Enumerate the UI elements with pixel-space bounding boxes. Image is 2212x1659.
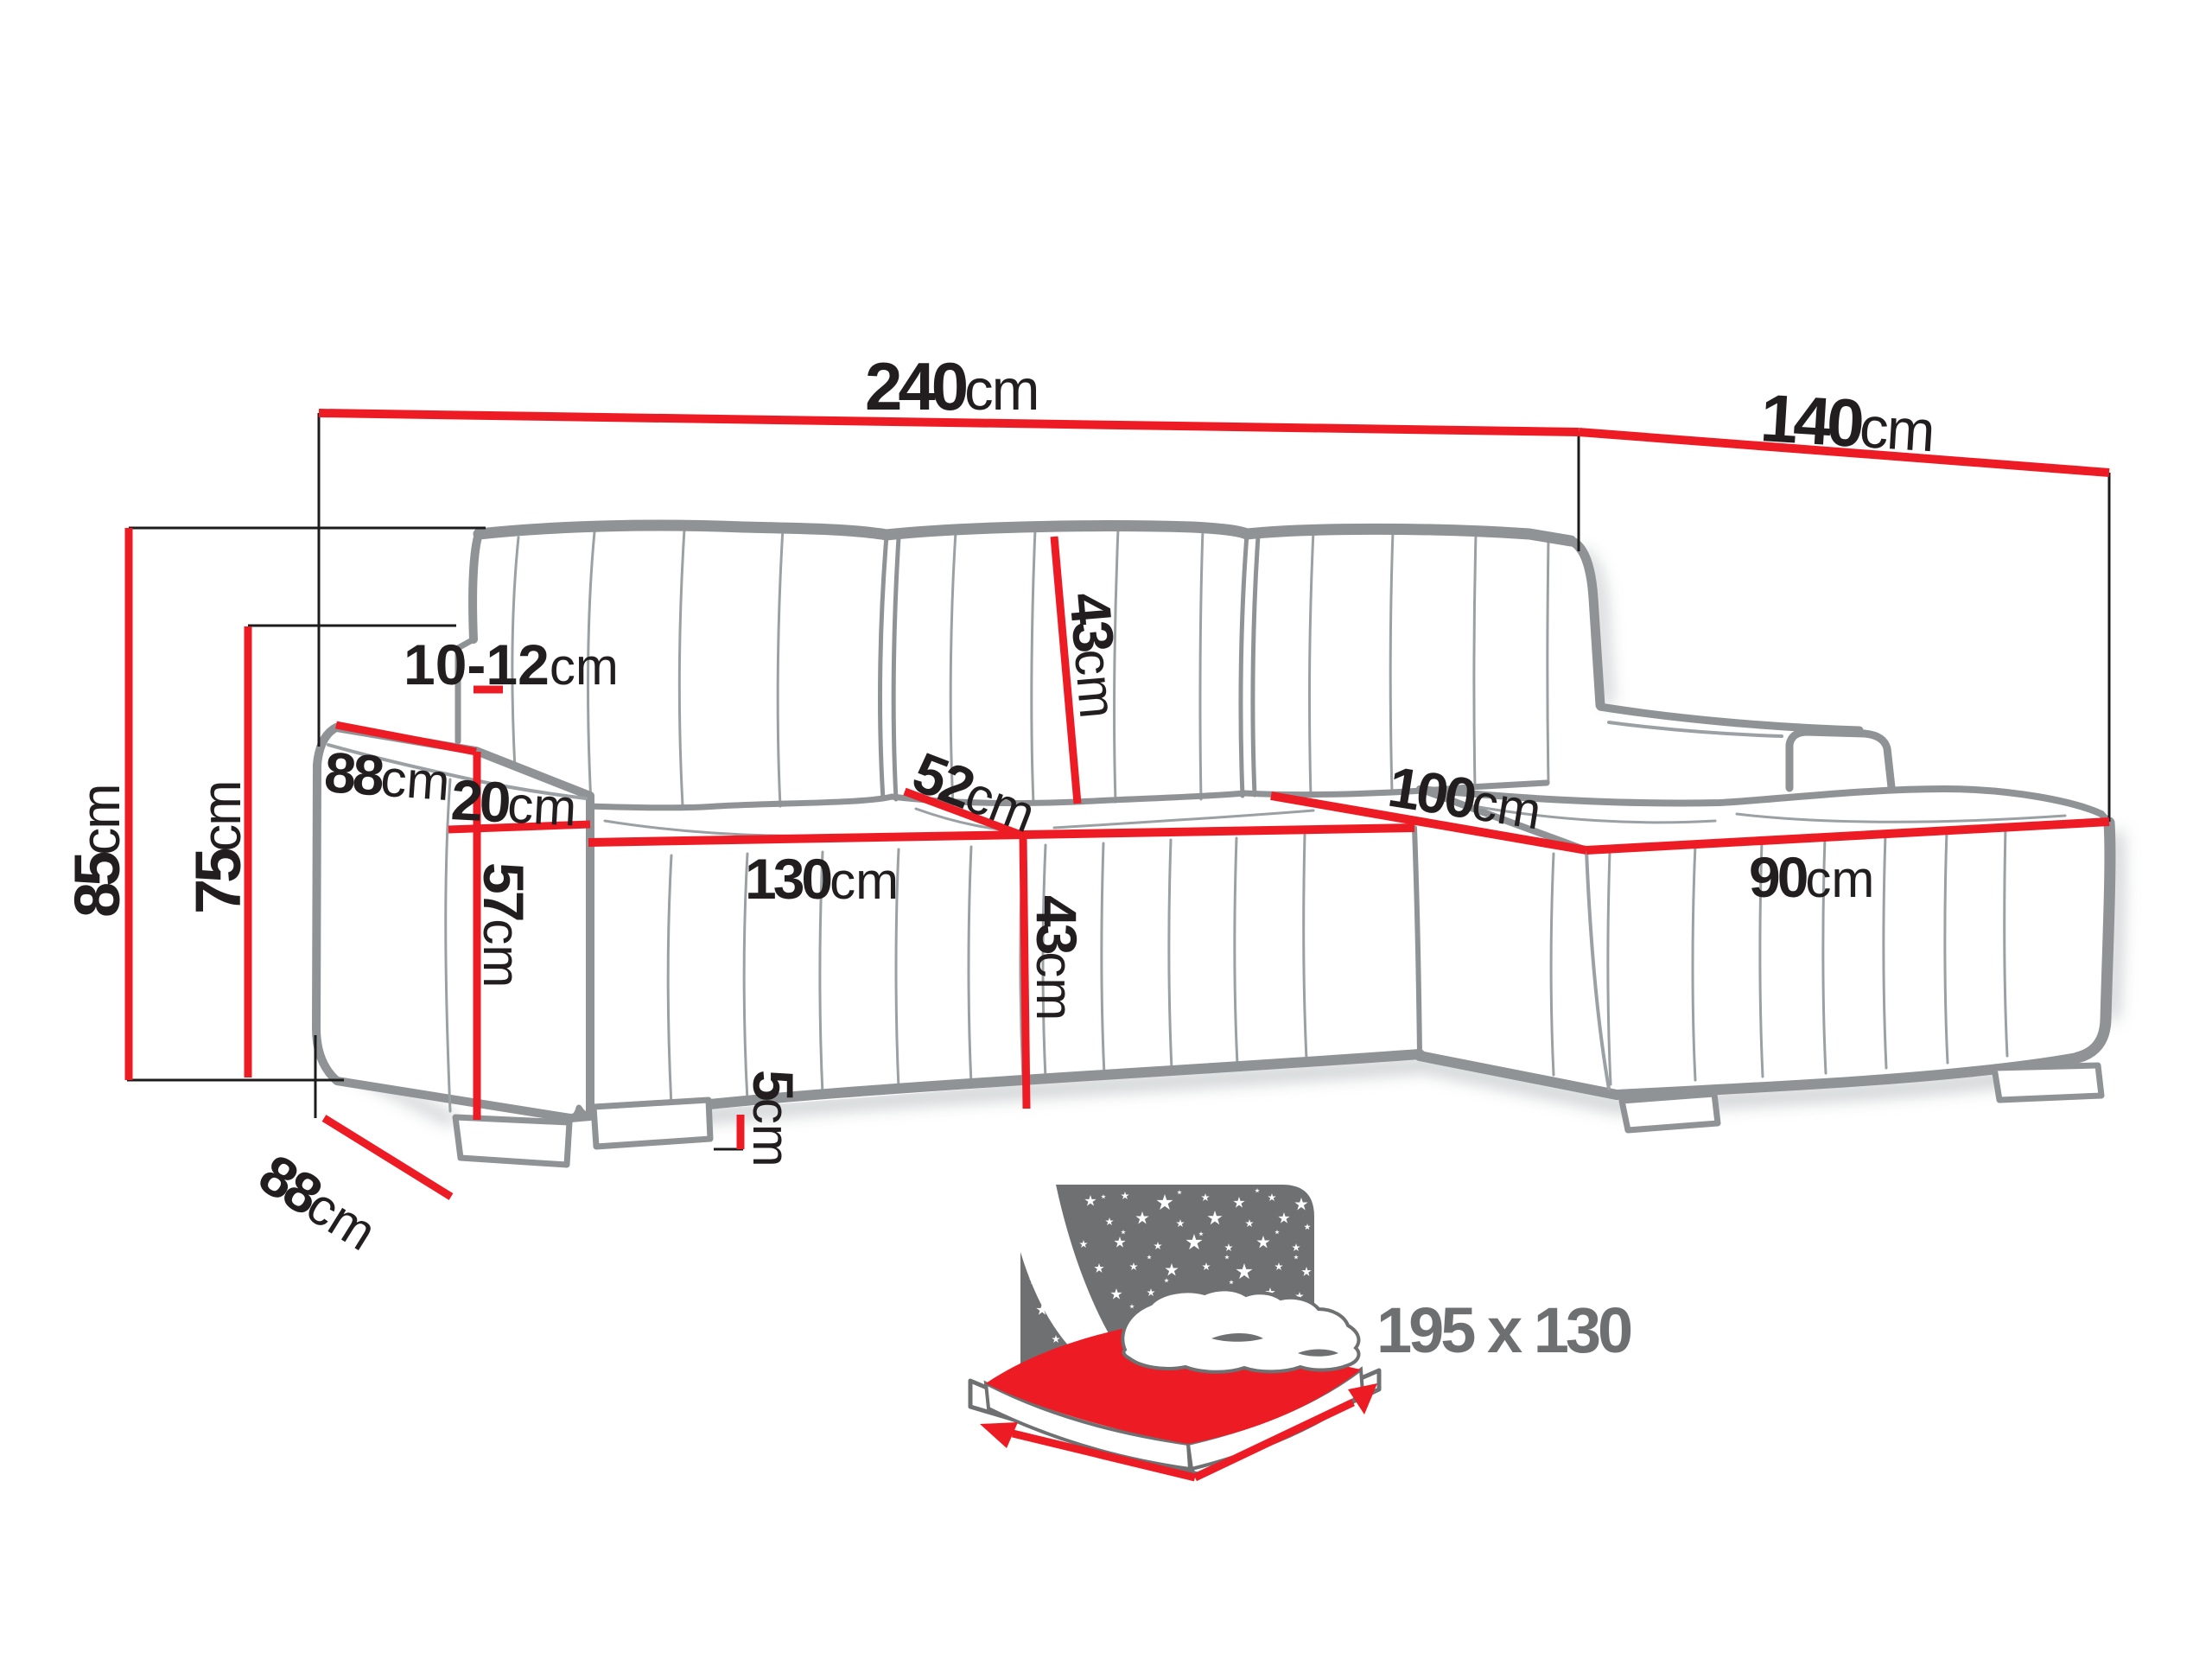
svg-text:130cm: 130cm	[745, 847, 899, 911]
svg-text:240cm: 240cm	[865, 348, 1038, 424]
svg-text:195 x 130: 195 x 130	[1376, 1294, 1631, 1366]
svg-text:75cm: 75cm	[182, 781, 254, 914]
svg-text:57cm: 57cm	[472, 862, 536, 988]
svg-text:43cm: 43cm	[1025, 895, 1089, 1020]
svg-text:5cm: 5cm	[741, 1070, 805, 1167]
svg-text:20cm: 20cm	[449, 767, 578, 838]
svg-text:10-12cm: 10-12cm	[404, 632, 619, 696]
svg-text:43cm: 43cm	[1058, 590, 1132, 721]
svg-text:85cm: 85cm	[61, 785, 133, 918]
svg-text:90cm: 90cm	[1749, 845, 1874, 909]
